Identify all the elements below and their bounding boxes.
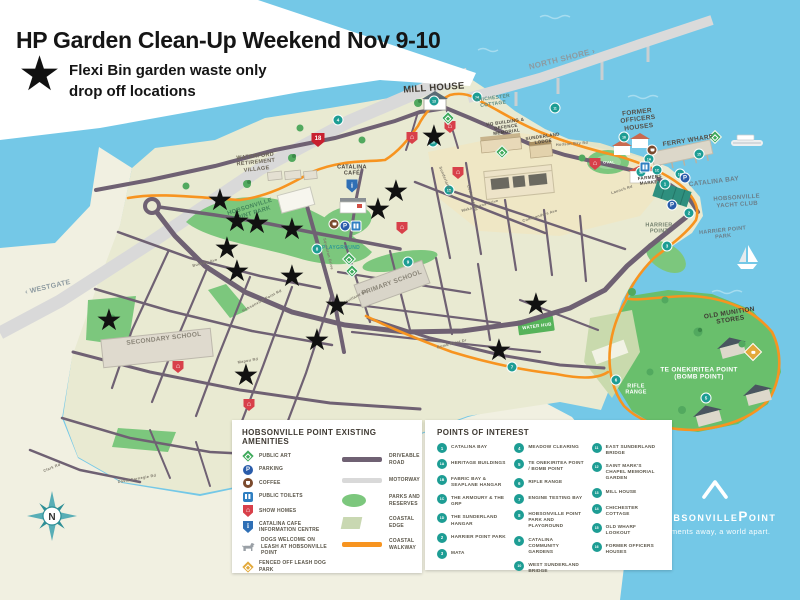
poi-item-number: 1A	[437, 459, 447, 469]
poi-item-label: MATA	[451, 548, 465, 556]
poi-item: 7ENGINE TESTING BAY	[514, 493, 584, 504]
show-homes-icon: ⌂	[242, 505, 254, 517]
coastal-walkway-swatch	[342, 542, 384, 547]
poi-item-label: EAST SUNDERLAND BRIDGE	[606, 442, 662, 456]
poi-item-label: SAINT MARK'S CHAPEL MEMORIAL GARDEN	[606, 461, 662, 481]
poi-item-label: THE SUNDERLAND HANGAR	[451, 512, 507, 526]
poi-item-label: RIFLE RANGE	[528, 477, 562, 485]
poi-item-label: THE ARMOURY & THE GRP	[451, 493, 507, 507]
information-centre-icon: i	[242, 521, 254, 533]
poi-item: 1CATALINA BAY	[437, 442, 507, 453]
poi-item-number: 5	[514, 459, 524, 469]
poi-item-number: 1B	[437, 475, 447, 485]
amenity-item: iCATALINA CAFE INFORMATION CENTRE	[242, 521, 334, 534]
poi-column: 4MEADOW CLEARING5TE ONEKIRITEA POINT / B…	[514, 442, 584, 574]
poi-item-number: 6	[514, 478, 524, 488]
amenity-item-label: COFFEE	[259, 480, 280, 487]
legend-line-item: PARKS AND RESERVES	[342, 494, 420, 507]
dog-park-icon	[242, 563, 254, 571]
poi-item-number: 3	[437, 549, 447, 559]
compass-rose: N	[27, 491, 77, 541]
poi-columns: 1CATALINA BAY1AHERITAGE BUILDINGS1BFABRI…	[437, 442, 662, 574]
poi-item-label: CATALINA COMMUNITY GARDENS	[528, 535, 584, 555]
map-poster: 1813141615121A1C11B2356789101141DPPPi⌂⌂⌂…	[0, 0, 800, 600]
subtitle: Flexi Bin garden waste only drop off loc…	[69, 60, 267, 102]
amenities-legend-panel: HOBSONVILLE POINT EXISTING AMENITIES PUB…	[232, 420, 422, 573]
poi-item-number: 10	[514, 561, 524, 571]
poi-item: 16FORMER OFFICERS HOUSES	[592, 541, 662, 555]
poi-item: 11EAST SUNDERLAND BRIDGE	[592, 442, 662, 456]
poi-item-number: 13	[592, 488, 602, 498]
poi-item-number: 11	[592, 443, 602, 453]
poi-item-label: MILL HOUSE	[606, 487, 637, 495]
legend-line-label: DRIVEABLE ROAD	[389, 453, 420, 466]
poi-item-label: MEADOW CLEARING	[528, 442, 579, 450]
poi-item-label: OLD WHARF LOOKOUT	[606, 522, 662, 536]
poi-item-label: WEST SUNDERLAND BRIDGE	[528, 560, 584, 574]
poi-item-number: 4	[514, 443, 524, 453]
roundabout	[145, 199, 159, 213]
poi-item-label: HERITAGE BUILDINGS	[451, 458, 506, 466]
legend-line-label: PARKS AND RESERVES	[389, 494, 420, 507]
public-toilets-icon	[242, 492, 254, 502]
poi-item: 12SAINT MARK'S CHAPEL MEMORIAL GARDEN	[592, 461, 662, 481]
title-block: HP Garden Clean-Up Weekend Nov 9-10 ★ Fl…	[16, 28, 441, 102]
poi-item: 1AHERITAGE BUILDINGS	[437, 458, 507, 469]
coastal-edge-swatch	[342, 517, 384, 529]
amenity-item-label: SHOW HOMES	[259, 508, 296, 515]
amenity-line-items: DRIVEABLE ROADMOTORWAYPARKS AND RESERVES…	[342, 451, 420, 573]
amenity-item: PUBLIC ART	[242, 451, 334, 461]
poi-item-label: HOBSONVILLE POINT PARK AND PLAYGROUND	[528, 509, 584, 529]
poi-item: 5TE ONEKIRITEA POINT / BOMB POINT	[514, 458, 584, 472]
poi-item-number: 15	[592, 523, 602, 533]
poi-item-label: TE ONEKIRITEA POINT / BOMB POINT	[528, 458, 584, 472]
amenity-item-label: CATALINA CAFE INFORMATION CENTRE	[259, 521, 334, 534]
poi-column: 1CATALINA BAY1AHERITAGE BUILDINGS1BFABRI…	[437, 442, 507, 574]
poi-legend-title: POINTS OF INTEREST	[437, 428, 662, 437]
motorway-swatch	[342, 478, 384, 483]
amenity-item-label: FENCED OFF LEASH DOG PARK	[259, 560, 334, 573]
driveable-road-swatch	[342, 457, 384, 462]
parks-and-reserves-swatch	[342, 494, 384, 507]
poi-item: 13MILL HOUSE	[592, 487, 662, 498]
poi-item-number: 1D	[437, 513, 447, 523]
flexi-bin-star-icon: ★	[18, 56, 61, 93]
legend-line-label: COASTAL EDGE	[389, 516, 420, 529]
poi-item: 1BFABRIC BAY & SEAPLANE HANGAR	[437, 474, 507, 488]
poi-item-label: HARRIER POINT PARK	[451, 532, 506, 540]
legend-line-item: COASTAL EDGE	[342, 516, 420, 529]
poi-legend-panel: POINTS OF INTEREST 1CATALINA BAY1AHERITA…	[425, 420, 672, 570]
dogs-welcome-icon	[242, 541, 256, 552]
amenity-item-label: PUBLIC TOILETS	[259, 493, 303, 500]
poi-column: 11EAST SUNDERLAND BRIDGE12SAINT MARK'S C…	[592, 442, 662, 574]
poi-item: 3MATA	[437, 548, 507, 559]
compass-north-label: N	[48, 512, 55, 523]
poi-item: 8HOBSONVILLE POINT PARK AND PLAYGROUND	[514, 509, 584, 529]
poi-item-number: 1	[437, 443, 447, 453]
poi-item: 6RIFLE RANGE	[514, 477, 584, 488]
poi-item: 1DTHE SUNDERLAND HANGAR	[437, 512, 507, 526]
coffee-icon	[242, 478, 254, 488]
parking-icon: P	[242, 465, 254, 475]
poi-item: 9CATALINA COMMUNITY GARDENS	[514, 535, 584, 555]
amenities-legend-title: HOBSONVILLE POINT EXISTING AMENITIES	[242, 428, 413, 446]
subtitle-line-2: drop off locations	[69, 81, 267, 102]
amenity-item: PPARKING	[242, 465, 334, 475]
legend-line-item: DRIVEABLE ROAD	[342, 453, 420, 466]
amenity-item-label: PARKING	[259, 466, 283, 473]
poi-item: 1CTHE ARMOURY & THE GRP	[437, 493, 507, 507]
legend-line-label: MOTORWAY	[389, 477, 420, 484]
public-art-icon	[242, 452, 254, 460]
legend-line-item: COASTAL WALKWAY	[342, 538, 420, 551]
amenity-item: COFFEE	[242, 478, 334, 488]
subtitle-line-1: Flexi Bin garden waste only	[69, 60, 267, 81]
poi-item-label: ENGINE TESTING BAY	[528, 493, 582, 501]
catalina-cafe-building	[340, 198, 366, 213]
poi-item-label: CATALINA BAY	[451, 442, 487, 450]
amenity-item-label: DOGS WELCOME ON LEASH AT HOBSONVILLE POI…	[261, 537, 334, 557]
poi-item-number: 12	[592, 462, 602, 472]
amenity-item: DOGS WELCOME ON LEASH AT HOBSONVILLE POI…	[242, 537, 334, 557]
poi-item: 10WEST SUNDERLAND BRIDGE	[514, 560, 584, 574]
poi-item-label: FABRIC BAY & SEAPLANE HANGAR	[451, 474, 507, 488]
amenity-item-label: PUBLIC ART	[259, 453, 291, 460]
poi-item-number: 2	[437, 533, 447, 543]
amenity-item: PUBLIC TOILETS	[242, 492, 334, 502]
poi-item-number: 9	[514, 536, 524, 546]
legend-line-label: COASTAL WALKWAY	[389, 538, 420, 551]
chevron-logo-icon	[698, 478, 732, 500]
poi-item-label: FORMER OFFICERS HOUSES	[606, 541, 662, 555]
page-title: HP Garden Clean-Up Weekend Nov 9-10	[16, 28, 441, 52]
poi-item-number: 8	[514, 510, 524, 520]
poi-item-number: 16	[592, 542, 602, 552]
amenity-item: FENCED OFF LEASH DOG PARK	[242, 560, 334, 573]
poi-item-number: 7	[514, 494, 524, 504]
poi-item: 14CHICHESTER COTTAGE	[592, 503, 662, 517]
poi-item: 15OLD WHARF LOOKOUT	[592, 522, 662, 536]
poi-item: 4MEADOW CLEARING	[514, 442, 584, 453]
poi-item-number: 14	[592, 504, 602, 514]
poi-item-number: 1C	[437, 494, 447, 504]
amenity-item: ⌂SHOW HOMES	[242, 505, 334, 517]
poi-item-label: CHICHESTER COTTAGE	[606, 503, 662, 517]
legend-line-item: MOTORWAY	[342, 475, 420, 485]
poi-item: 2HARRIER POINT PARK	[437, 532, 507, 543]
amenity-items: PUBLIC ARTPPARKINGCOFFEEPUBLIC TOILETS⌂S…	[242, 451, 334, 573]
